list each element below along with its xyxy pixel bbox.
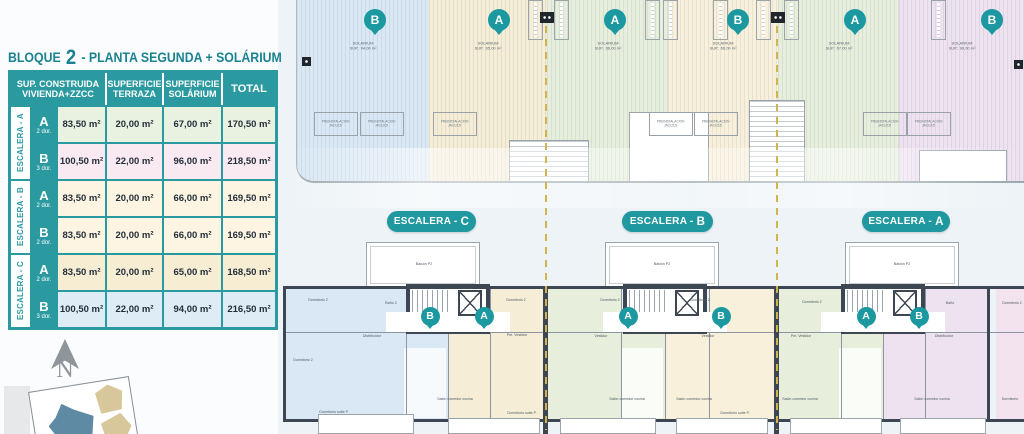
solarium-area-label: SOLARIUM SUP.: 67,00 m² [825, 41, 852, 51]
installation-box [756, 0, 771, 40]
surface-value: 22,00 m² [107, 144, 162, 179]
unit-badge-A: A [475, 307, 494, 326]
terrace [900, 418, 986, 434]
siteplan-shadow [4, 386, 30, 434]
unit-badge-A: A [857, 307, 876, 326]
surface-value: 100,50 m² [58, 144, 105, 179]
unit-letter-cell: A2 dor. [32, 107, 56, 142]
escalera-group-label: ESCALERA - A [11, 107, 30, 179]
terrace [676, 418, 768, 434]
surface-table: SUP. CONSTRUIDA VIVIENDA+ZZCCSUPERFICIE … [8, 70, 278, 330]
unit-letter: A [39, 115, 48, 128]
unit-area [883, 332, 988, 422]
room-label: Balcón P2 [654, 262, 670, 267]
jacuzzi-preinstall-box: PREINSTALACIÓN JACUZZI [314, 112, 358, 136]
room-label: Baño 2 [385, 301, 396, 306]
installation-box [663, 0, 678, 40]
room-label: Baño [946, 301, 954, 306]
room-label: Dormitorio 2 [600, 298, 620, 303]
section-marker [540, 12, 554, 23]
blueprint-page: PREINSTALACIÓN JACUZZIPREINSTALACIÓN JAC… [0, 0, 1024, 434]
watermark-band [285, 148, 1024, 208]
room-label: Salón comedor cocina [782, 397, 818, 402]
kitchen-area [621, 348, 663, 418]
table-header: TOTAL [223, 73, 275, 105]
jacuzzi-preinstall-box: PREINSTALACIÓN JACUZZI [694, 112, 738, 136]
surface-value: 218,50 m² [223, 144, 275, 179]
unit-dorms: 3 dor. [36, 314, 51, 320]
unit-badge-B: B [421, 307, 440, 326]
table-header: SUPERFICIE SOLÁRIUM [164, 73, 221, 105]
terrace [790, 418, 882, 434]
interior-wall [665, 334, 666, 419]
table-header: SUPERFICIE TERRAZA [107, 73, 162, 105]
unit-letter-cell: A2 dor. [32, 255, 56, 290]
solarium-unit-pin: A [844, 9, 866, 31]
installation-box [931, 0, 946, 40]
surface-value: 83,50 m² [58, 107, 105, 142]
unit-dorms: 2 dor. [36, 240, 51, 246]
surface-value: 94,00 m² [164, 292, 221, 327]
unit-area [996, 332, 1024, 422]
jacuzzi-preinstall-label: PREINSTALACIÓN JACUZZI [871, 120, 899, 128]
unit-area [448, 332, 546, 422]
unit-letter: A [39, 263, 48, 276]
siteplan-block-2 [91, 382, 125, 414]
escalera-pill-B: ESCALERA -B [622, 211, 713, 232]
solarium-unit-pin: A [604, 9, 626, 31]
unit-letter: A [39, 189, 48, 202]
surface-value: 66,00 m² [164, 218, 221, 253]
surface-value: 96,00 m² [164, 144, 221, 179]
unit-letter-cell: B3 dor. [32, 144, 56, 179]
unit-area [996, 288, 1024, 332]
room-label: Dormitorio 2 [690, 298, 710, 303]
siteplan-thumbnail [28, 376, 139, 434]
solarium-area-label: SOLARIUM SUP.: 65,00 m² [475, 41, 502, 51]
page-title: BLOQUE 2 - PLANTA SEGUNDA + SOLÁRIUM [8, 46, 282, 70]
surface-value: 66,00 m² [164, 181, 221, 216]
jacuzzi-preinstall-label: PREINSTALACIÓN JACUZZI [657, 120, 685, 128]
escalera-pill-A: ESCALERA -A [862, 211, 950, 232]
terrace [560, 418, 656, 434]
room-label: Distribuidor [935, 334, 953, 339]
table-header: SUP. CONSTRUIDA VIVIENDA+ZZCC [11, 73, 105, 105]
unit-badge-B: B [712, 307, 731, 326]
room-label: Balcón P2 [894, 262, 910, 267]
unit-letter-cell: B3 dor. [32, 292, 56, 327]
section-dashed-line [776, 26, 778, 430]
unit-letter: B [39, 300, 48, 313]
title-block-number: 2 [66, 46, 76, 69]
room-label: Pre. Vestidor [791, 334, 812, 339]
unit-badge-A: A [619, 307, 638, 326]
boundary-marker [302, 57, 311, 66]
surface-value: 65,00 m² [164, 255, 221, 290]
surface-value: 20,00 m² [107, 218, 162, 253]
escalera-group-label: ESCALERA - B [11, 181, 30, 253]
structural-wall [285, 286, 1024, 289]
jacuzzi-preinstall-label: PREINSTALACIÓN JACUZZI [702, 120, 730, 128]
room-label: Vestidor [701, 334, 714, 339]
pill-text: ESCALERA - [868, 216, 932, 227]
solarium-area-label: SOLARIUM SUP.: 94,00 m² [350, 41, 377, 51]
surface-value: 170,50 m² [223, 107, 275, 142]
siteplan-block-3 [100, 411, 134, 434]
jacuzzi-preinstall-box: PREINSTALACIÓN JACUZZI [863, 112, 907, 136]
unit-badge-B: B [910, 307, 929, 326]
room-label: Salón comedor cocina [914, 397, 950, 402]
surface-value: 20,00 m² [107, 107, 162, 142]
structural-wall [283, 286, 286, 422]
installation-box [784, 0, 799, 40]
terrace [318, 414, 414, 434]
unit-letter-cell: B2 dor. [32, 218, 56, 253]
solarium-unit-pin: B [364, 9, 386, 31]
room-label: Dormitorio suite P. [319, 410, 348, 415]
solarium-area-label: SOLARIUM SUP.: 66,00 m² [710, 41, 737, 51]
unit-dorms: 2 dor. [36, 129, 51, 135]
kitchen-area [404, 348, 446, 418]
jacuzzi-preinstall-label: PREINSTALACIÓN JACUZZI [322, 120, 350, 128]
structural-wall [987, 288, 990, 420]
solarium-unit-pin: B [981, 9, 1003, 31]
surface-value: 100,50 m² [58, 292, 105, 327]
unit-letter: B [39, 226, 48, 239]
surface-value: 169,50 m² [223, 181, 275, 216]
pill-letter: B [697, 216, 706, 228]
room-label: Salón comedor cocina [437, 397, 473, 402]
solarium-unit-pin: B [727, 9, 749, 31]
surface-value: 168,50 m² [223, 255, 275, 290]
surface-value: 83,50 m² [58, 218, 105, 253]
surface-value: 83,50 m² [58, 181, 105, 216]
room-label: Balcón P2 [416, 262, 432, 267]
room-label: Dormitorio 2 [506, 298, 526, 303]
pill-text: ESCALERA - [630, 216, 694, 227]
room-label: Pre. Vestidor [507, 333, 528, 338]
boundary-marker [1014, 60, 1023, 69]
title-suffix: - PLANTA SEGUNDA + SOLÁRIUM [81, 49, 281, 65]
title-prefix: BLOQUE [8, 49, 61, 65]
north-letter: N [56, 358, 73, 382]
solarium-unit-pin: A [488, 9, 510, 31]
room-label: Dormitorio 2 [1002, 301, 1022, 306]
interior-wall [490, 288, 491, 419]
jacuzzi-preinstall-label: PREINSTALACIÓN JACUZZI [441, 120, 469, 128]
terrace [448, 418, 540, 434]
kitchen-area [839, 348, 881, 418]
solarium-area-label: SOLARIUM SUP.: 66,00 m² [594, 41, 621, 51]
unit-dorms: 3 dor. [36, 166, 51, 172]
interior-wall [883, 334, 884, 419]
unit-dorms: 2 dor. [36, 277, 51, 283]
siteplan-current-block [45, 399, 97, 434]
surface-value: 67,00 m² [164, 107, 221, 142]
room-label: Distribuidor [363, 334, 381, 339]
room-label: Salón comedor cocina [676, 397, 712, 402]
escalera-group-label: ESCALERA - C [11, 255, 30, 327]
room-label: Salón comedor cocina [609, 397, 645, 402]
jacuzzi-preinstall-box: PREINSTALACIÓN JACUZZI [907, 112, 951, 136]
escalera-pill-C: ESCALERA -C [387, 211, 476, 232]
room-label: Vestidor [594, 334, 607, 339]
unit-dorms: 2 dor. [36, 203, 51, 209]
jacuzzi-preinstall-box: PREINSTALACIÓN JACUZZI [360, 112, 404, 136]
section-dashed-line [545, 26, 547, 430]
jacuzzi-preinstall-label: PREINSTALACIÓN JACUZZI [915, 120, 943, 128]
room-label: Dormitorio 2 [802, 300, 822, 305]
unit-letter-cell: A2 dor. [32, 181, 56, 216]
section-marker [771, 12, 785, 23]
solarium-area-label: SOLARIUM SUP.: 96,00 m² [949, 41, 976, 51]
room-label: Dormitorio suite P. [720, 411, 749, 416]
jacuzzi-preinstall-box: PREINSTALACIÓN JACUZZI [649, 112, 693, 136]
surface-value: 20,00 m² [107, 181, 162, 216]
room-label: Dormitorio [1002, 397, 1019, 402]
pill-letter: C [461, 216, 470, 228]
surface-value: 20,00 m² [107, 255, 162, 290]
installation-box [713, 0, 728, 40]
unit-letter: B [39, 152, 48, 165]
surface-value: 83,50 m² [58, 255, 105, 290]
elevator [675, 290, 699, 316]
room-label: Dormitorio 2 [308, 298, 328, 303]
room-label: Dormitorio suite P. [507, 411, 536, 416]
pill-text: ESCALERA - [394, 216, 458, 227]
pill-letter: A [935, 216, 944, 228]
interior-wall [448, 334, 449, 419]
jacuzzi-preinstall-box: PREINSTALACIÓN JACUZZI [433, 112, 477, 136]
installation-box [554, 0, 569, 40]
unit-area [665, 332, 777, 422]
surface-value: 169,50 m² [223, 218, 275, 253]
room-label: Dormitorio 2 [293, 358, 313, 363]
surface-value: 216,50 m² [223, 292, 275, 327]
jacuzzi-preinstall-label: PREINSTALACIÓN JACUZZI [368, 120, 396, 128]
installation-box [645, 0, 660, 40]
surface-value: 22,00 m² [107, 292, 162, 327]
